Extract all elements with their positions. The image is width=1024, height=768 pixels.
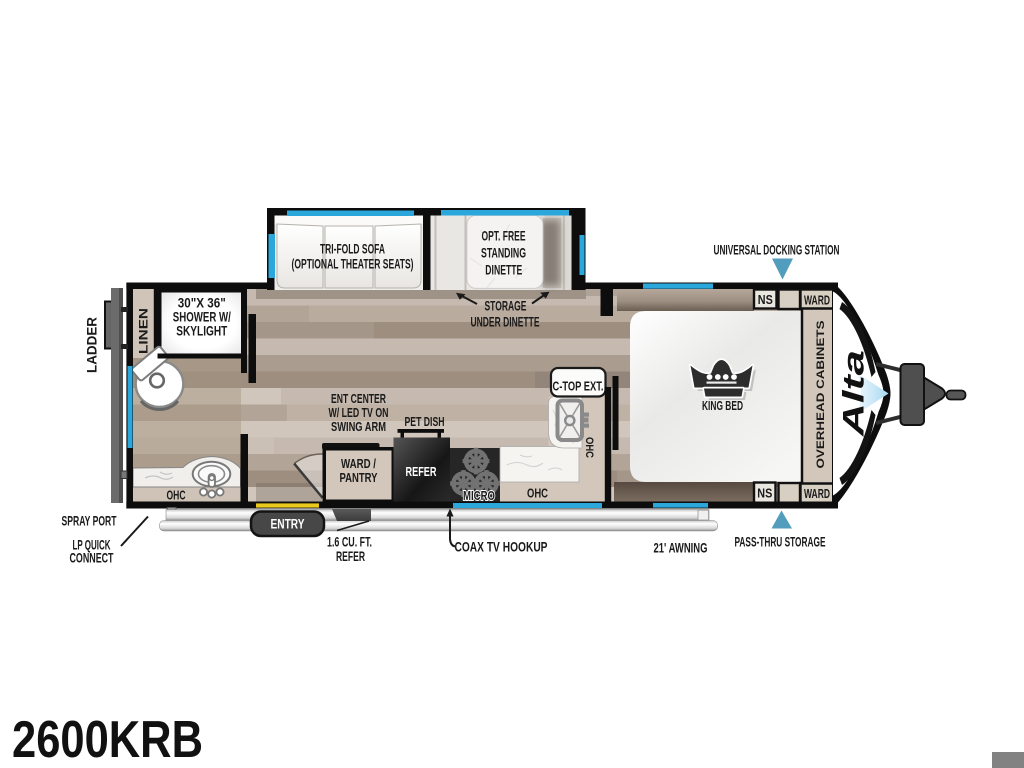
svg-text:DINETTE: DINETTE xyxy=(485,262,522,278)
svg-text:MICRO: MICRO xyxy=(463,488,495,503)
svg-text:OHC: OHC xyxy=(167,489,186,503)
svg-text:WARD: WARD xyxy=(804,293,830,308)
svg-text:PET DISH: PET DISH xyxy=(405,414,445,429)
svg-text:LINEN: LINEN xyxy=(139,308,151,354)
svg-text:PASS-THRU STORAGE: PASS-THRU STORAGE xyxy=(735,534,826,550)
svg-text:NS: NS xyxy=(757,486,772,501)
svg-text:REFER: REFER xyxy=(336,548,365,564)
svg-text:W/ LED TV ON: W/ LED TV ON xyxy=(329,405,389,420)
svg-text:REFER: REFER xyxy=(406,464,437,479)
svg-text:ENTRY: ENTRY xyxy=(271,517,305,532)
svg-text:SKYLIGHT: SKYLIGHT xyxy=(176,323,227,339)
svg-text:COAX TV HOOKUP: COAX TV HOOKUP xyxy=(455,539,548,555)
svg-text:KING BED: KING BED xyxy=(702,398,743,413)
svg-text:21' AWNING: 21' AWNING xyxy=(654,540,708,556)
svg-text:(OPTIONAL THEATER SEATS): (OPTIONAL THEATER SEATS) xyxy=(292,257,414,272)
svg-text:OVERHEAD CABINETS: OVERHEAD CABINETS xyxy=(815,321,827,469)
svg-text:LADDER: LADDER xyxy=(84,317,100,373)
svg-text:SWING ARM: SWING ARM xyxy=(331,419,386,434)
svg-text:ENT CENTER: ENT CENTER xyxy=(331,391,386,406)
svg-text:STORAGE: STORAGE xyxy=(485,298,527,314)
svg-text:PANTRY: PANTRY xyxy=(340,470,378,485)
svg-text:OPT. FREE: OPT. FREE xyxy=(482,228,526,244)
svg-text:WARD /: WARD / xyxy=(341,456,376,471)
svg-text:UNIVERSAL DOCKING STATION: UNIVERSAL DOCKING STATION xyxy=(714,242,840,258)
svg-text:OHC: OHC xyxy=(583,437,595,458)
svg-text:OHC: OHC xyxy=(527,486,548,501)
svg-text:C-TOP EXT.: C-TOP EXT. xyxy=(553,379,604,394)
svg-text:TRI-FOLD SOFA: TRI-FOLD SOFA xyxy=(320,242,385,257)
svg-text:WARD: WARD xyxy=(804,486,830,501)
svg-text:NS: NS xyxy=(758,292,773,307)
svg-text:Alta: Alta xyxy=(838,350,871,438)
svg-text:SPRAY PORT: SPRAY PORT xyxy=(62,513,117,529)
svg-text:UNDER DINETTE: UNDER DINETTE xyxy=(471,314,540,330)
svg-text:2600KRB: 2600KRB xyxy=(12,711,203,768)
svg-text:STANDING: STANDING xyxy=(481,245,526,261)
svg-text:CONNECT: CONNECT xyxy=(70,550,114,566)
